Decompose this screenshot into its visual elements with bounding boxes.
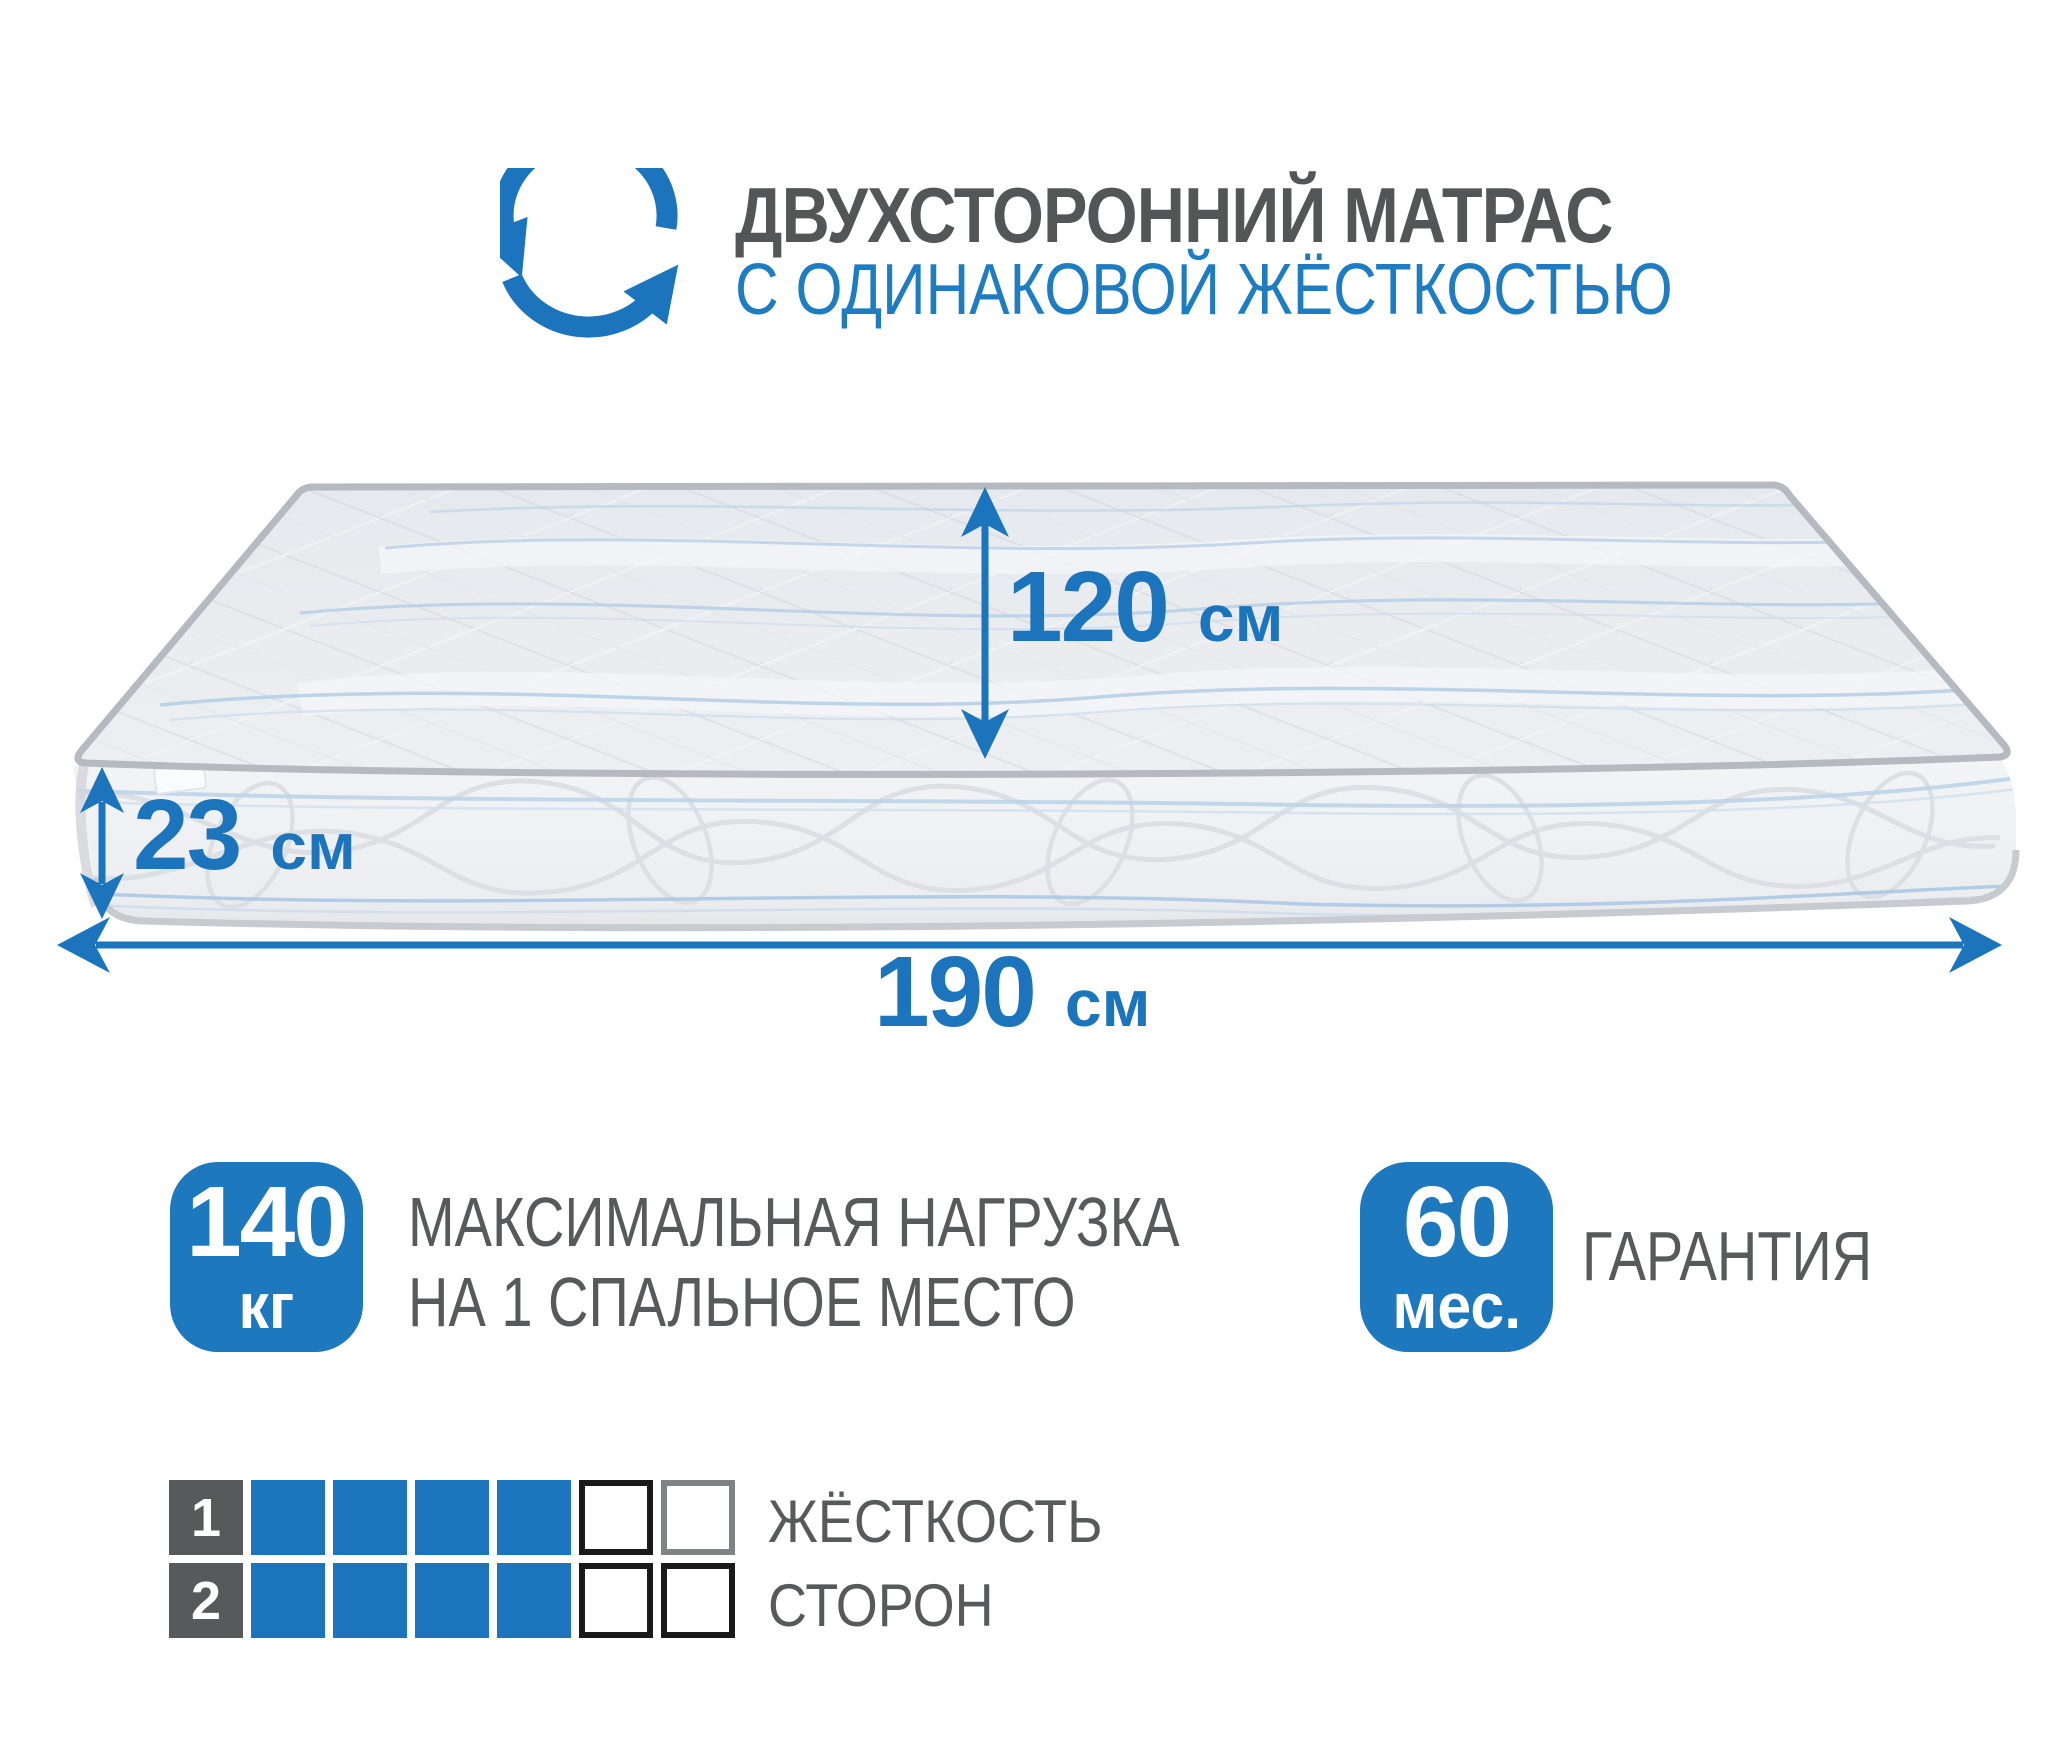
width-unit: см xyxy=(1198,585,1284,651)
length-value: 190 xyxy=(874,942,1035,1042)
max-load-label-line1: МАКСИМАЛЬНАЯ НАГРУЗКА xyxy=(408,1182,1180,1262)
scale-cell-filled xyxy=(415,1480,489,1555)
scale-cell-filled xyxy=(497,1480,571,1555)
max-load-value: 140 xyxy=(186,1176,347,1268)
scale-cell-filled xyxy=(251,1563,325,1638)
max-load-label-line2: НА 1 СПАЛЬНОЕ МЕСТО xyxy=(408,1262,1180,1342)
max-load-unit: кг xyxy=(239,1274,295,1338)
length-dimension-label: 190 см xyxy=(874,942,1150,1042)
length-unit: см xyxy=(1065,970,1151,1036)
scale-row: 1 xyxy=(169,1480,735,1555)
scale-cell-filled xyxy=(497,1563,571,1638)
infographic-canvas: ДВУХСТОРОННИЙ МАТРАС С ОДИНАКОВОЙ ЖЁСТКО… xyxy=(0,0,2048,1757)
firmness-scale: 12 xyxy=(169,1480,735,1646)
scale-cell-filled xyxy=(415,1563,489,1638)
scale-cell-empty xyxy=(661,1480,735,1555)
warranty-label: ГАРАНТИЯ xyxy=(1582,1216,1872,1296)
width-value: 120 xyxy=(1007,557,1168,657)
width-dimension-label: 120 см xyxy=(1007,557,1283,657)
rotate-arrows-icon xyxy=(500,168,685,338)
scale-cell-empty xyxy=(579,1480,653,1555)
height-dimension-label: 23 см xyxy=(133,785,356,885)
height-value: 23 xyxy=(133,785,240,885)
scale-row: 2 xyxy=(169,1563,735,1638)
warranty-unit: мес. xyxy=(1392,1274,1521,1338)
scale-side-number: 2 xyxy=(169,1563,243,1638)
warranty-value: 60 xyxy=(1403,1176,1510,1268)
firmness-scale-label-line1: ЖЁСТКОСТЬ xyxy=(768,1492,1103,1552)
page-title: ДВУХСТОРОННИЙ МАТРАС xyxy=(735,176,1613,254)
max-load-label: МАКСИМАЛЬНАЯ НАГРУЗКА НА 1 СПАЛЬНОЕ МЕСТ… xyxy=(408,1182,1180,1342)
scale-cell-empty xyxy=(661,1563,735,1638)
page-subtitle: С ОДИНАКОВОЙ ЖЁСТКОСТЬЮ xyxy=(735,254,1673,326)
scale-cell-filled xyxy=(333,1563,407,1638)
warranty-badge: 60 мес. xyxy=(1360,1162,1553,1352)
scale-cell-filled xyxy=(333,1480,407,1555)
scale-cell-empty xyxy=(579,1563,653,1638)
firmness-scale-rows: 12 xyxy=(169,1480,735,1638)
height-unit: см xyxy=(270,813,356,879)
firmness-scale-label-line2: СТОРОН xyxy=(768,1576,994,1636)
scale-side-number: 1 xyxy=(169,1480,243,1555)
max-load-badge: 140 кг xyxy=(170,1162,363,1352)
scale-cell-filled xyxy=(251,1480,325,1555)
